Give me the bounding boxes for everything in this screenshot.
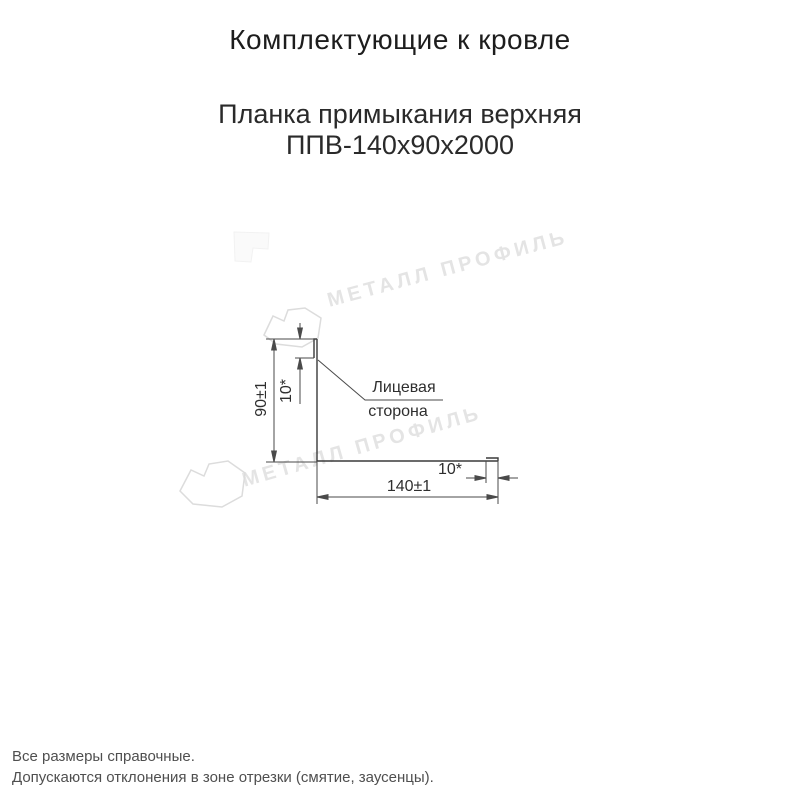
dim-label-10-top: 10* (278, 379, 296, 403)
watermark-logo-bottom-icon (180, 461, 245, 507)
note-dimensions-reference: Все размеры справочные. (12, 746, 434, 767)
face-side-label-line1: Лицевая (372, 379, 435, 397)
dimension-90 (272, 339, 277, 462)
watermark-logo-fragment (234, 232, 269, 262)
watermark-logo-top-icon (264, 308, 321, 347)
dim-label-140: 140±1 (387, 478, 431, 496)
dim-label-90: 90±1 (253, 381, 271, 416)
face-side-label-line2: сторона (368, 403, 428, 421)
dimension-10-top (298, 323, 303, 404)
profile-cross-section-drawing (0, 0, 800, 800)
dimension-10-end (466, 476, 518, 481)
spec-sheet-page: Комплектующие к кровле Планка примыкания… (0, 0, 800, 800)
note-cutting-deviations: Допускаются отклонения в зоне отрезки (с… (12, 767, 434, 788)
footer-notes: Все размеры справочные. Допускаются откл… (12, 746, 434, 788)
dim-label-10-end: 10* (438, 461, 462, 479)
